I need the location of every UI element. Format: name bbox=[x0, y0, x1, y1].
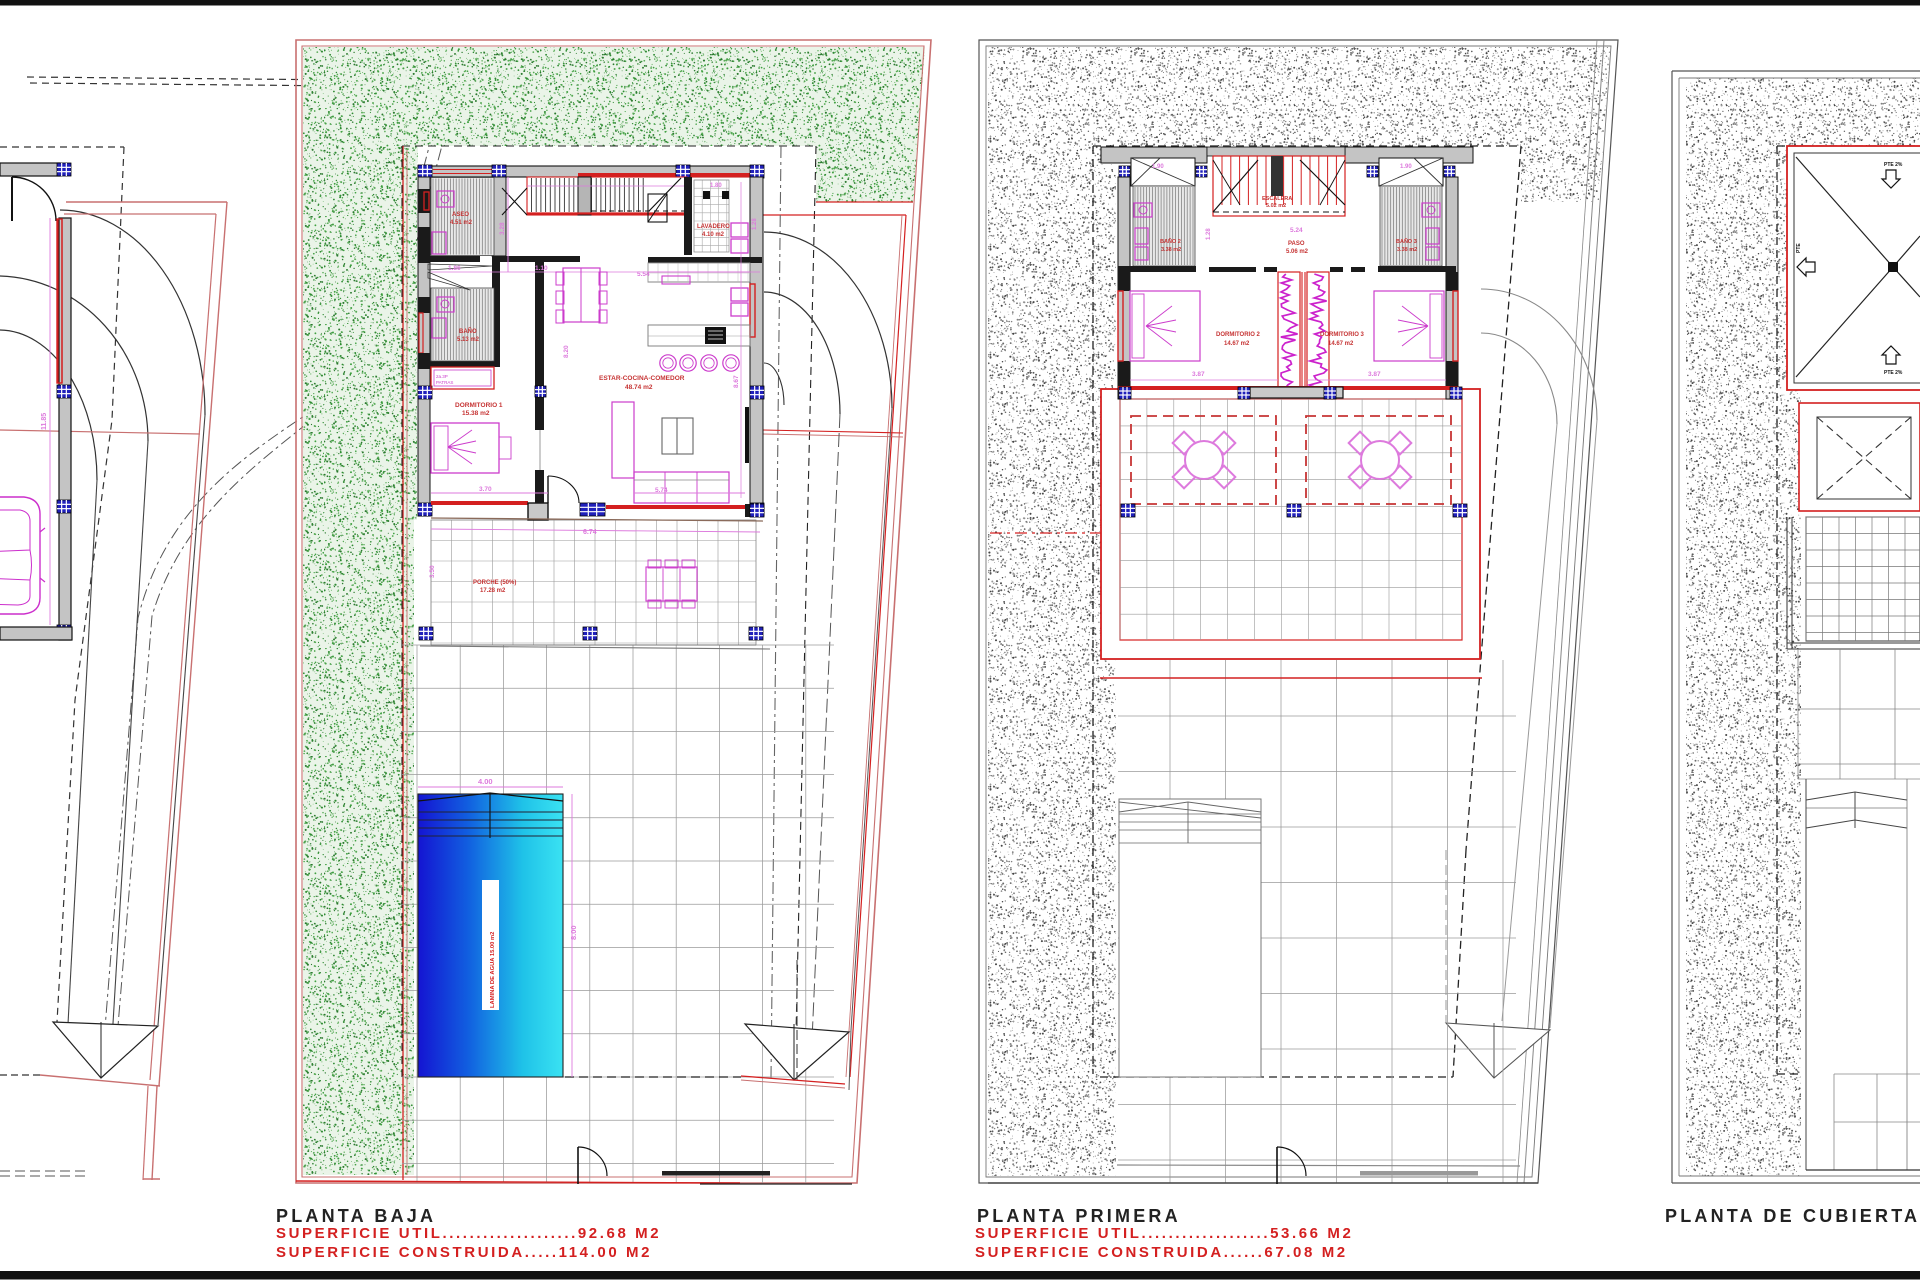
svg-text:17.28 m2: 17.28 m2 bbox=[480, 588, 506, 594]
svg-text:5.54: 5.54 bbox=[637, 271, 650, 278]
svg-text:DORMITORIO 1: DORMITORIO 1 bbox=[455, 402, 503, 409]
svg-text:PTE 2%: PTE 2% bbox=[1884, 370, 1903, 376]
svg-text:15.38 m2: 15.38 m2 bbox=[462, 410, 490, 417]
svg-text:4.10 m2: 4.10 m2 bbox=[702, 232, 725, 238]
svg-text:SUPERFICIE CONSTRUIDA......67.: SUPERFICIE CONSTRUIDA......67.08 M2 bbox=[975, 1244, 1348, 1261]
svg-text:DORMITORIO 3: DORMITORIO 3 bbox=[1320, 332, 1365, 338]
svg-text:4.00: 4.00 bbox=[478, 777, 493, 786]
svg-text:DORMITORIO 2: DORMITORIO 2 bbox=[1216, 332, 1261, 338]
svg-text:2a.3P: 2a.3P bbox=[436, 374, 448, 379]
svg-text:LAVADERO: LAVADERO bbox=[697, 224, 730, 230]
svg-text:PLANTA DE CUBIERTA: PLANTA DE CUBIERTA bbox=[1665, 1206, 1920, 1226]
svg-text:SUPERFICIE CONSTRUIDA.....114.: SUPERFICIE CONSTRUIDA.....114.00 M2 bbox=[276, 1244, 652, 1261]
svg-text:PLANTA PRIMERA: PLANTA PRIMERA bbox=[977, 1206, 1181, 1226]
svg-text:BAÑO 3: BAÑO 3 bbox=[1396, 238, 1417, 245]
svg-text:1.90: 1.90 bbox=[1152, 164, 1164, 170]
svg-text:PTE: PTE bbox=[1796, 243, 1802, 253]
svg-text:5.24: 5.24 bbox=[1290, 227, 1303, 234]
svg-text:5.06 m2: 5.06 m2 bbox=[1286, 249, 1309, 255]
svg-text:1.80: 1.80 bbox=[710, 183, 722, 189]
svg-text:SUPERFICIE UTIL...............: SUPERFICIE UTIL....................92.68… bbox=[276, 1225, 661, 1242]
svg-text:PLANTA BAJA: PLANTA BAJA bbox=[276, 1206, 436, 1226]
svg-text:8.00: 8.00 bbox=[569, 925, 578, 940]
svg-text:PORCHE (50%): PORCHE (50%) bbox=[473, 580, 516, 586]
svg-text:PTE 2%: PTE 2% bbox=[1884, 162, 1903, 168]
svg-text:3.87: 3.87 bbox=[1192, 371, 1205, 378]
svg-text:BAÑO 2: BAÑO 2 bbox=[1160, 238, 1181, 245]
svg-text:4.51 m2: 4.51 m2 bbox=[450, 220, 473, 226]
svg-text:1.10: 1.10 bbox=[535, 265, 548, 272]
svg-text:1.86: 1.86 bbox=[448, 265, 461, 272]
svg-text:3.38 m2: 3.38 m2 bbox=[1161, 247, 1181, 253]
svg-text:3.38 m2: 3.38 m2 bbox=[1397, 247, 1417, 253]
svg-text:3.50: 3.50 bbox=[429, 565, 436, 578]
svg-text:14.67 m2: 14.67 m2 bbox=[1328, 341, 1354, 347]
svg-text:1.28: 1.28 bbox=[752, 218, 758, 230]
svg-text:5.13 m2: 5.13 m2 bbox=[457, 337, 480, 343]
svg-text:14.67 m2: 14.67 m2 bbox=[1224, 341, 1250, 347]
svg-text:SUPERFICIE UTIL...............: SUPERFICIE UTIL...................53.66 … bbox=[975, 1225, 1353, 1242]
svg-text:ESCALERA: ESCALERA bbox=[1262, 196, 1292, 202]
svg-text:1.90: 1.90 bbox=[1400, 164, 1412, 170]
svg-text:ESTAR-COCINA-COMEDOR: ESTAR-COCINA-COMEDOR bbox=[599, 375, 685, 382]
svg-text:LAMINA DE AGUA 15.00 m2: LAMINA DE AGUA 15.00 m2 bbox=[490, 932, 496, 1008]
svg-text:PASO: PASO bbox=[1288, 241, 1305, 247]
svg-text:48.74 m2: 48.74 m2 bbox=[625, 384, 653, 391]
svg-text:3.70: 3.70 bbox=[479, 486, 492, 493]
svg-text:3.28: 3.28 bbox=[499, 222, 506, 235]
svg-text:11.85: 11.85 bbox=[41, 413, 48, 430]
svg-text:8.20: 8.20 bbox=[563, 345, 570, 358]
svg-text:5.02 m2: 5.02 m2 bbox=[1266, 203, 1286, 209]
svg-text:1.28: 1.28 bbox=[1206, 228, 1212, 240]
svg-text:6.74: 6.74 bbox=[583, 529, 597, 536]
svg-text:8.67: 8.67 bbox=[733, 375, 740, 388]
svg-text:ASEO: ASEO bbox=[452, 212, 469, 218]
svg-text:3.87: 3.87 bbox=[1368, 371, 1381, 378]
svg-text:BAÑO: BAÑO bbox=[459, 328, 477, 335]
svg-text:PATRAS: PATRAS bbox=[436, 380, 453, 385]
